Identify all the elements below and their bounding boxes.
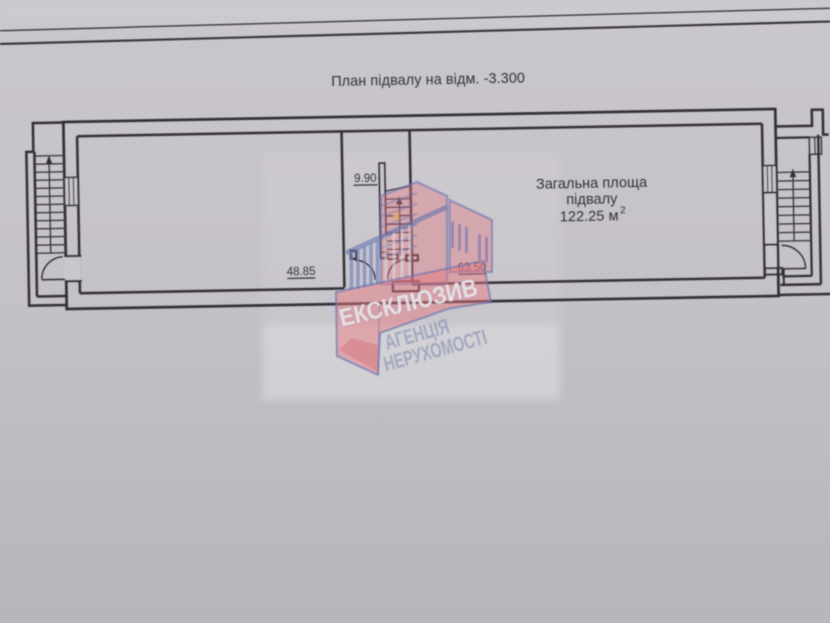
svg-text:48.85: 48.85: [287, 266, 316, 279]
svg-text:9.90: 9.90: [354, 173, 377, 185]
svg-text:2: 2: [620, 205, 626, 216]
svg-text:Загальна площа: Загальна площа: [536, 175, 648, 193]
svg-text:підвалу: підвалу: [566, 191, 618, 208]
svg-text:122.25 м: 122.25 м: [560, 208, 619, 225]
